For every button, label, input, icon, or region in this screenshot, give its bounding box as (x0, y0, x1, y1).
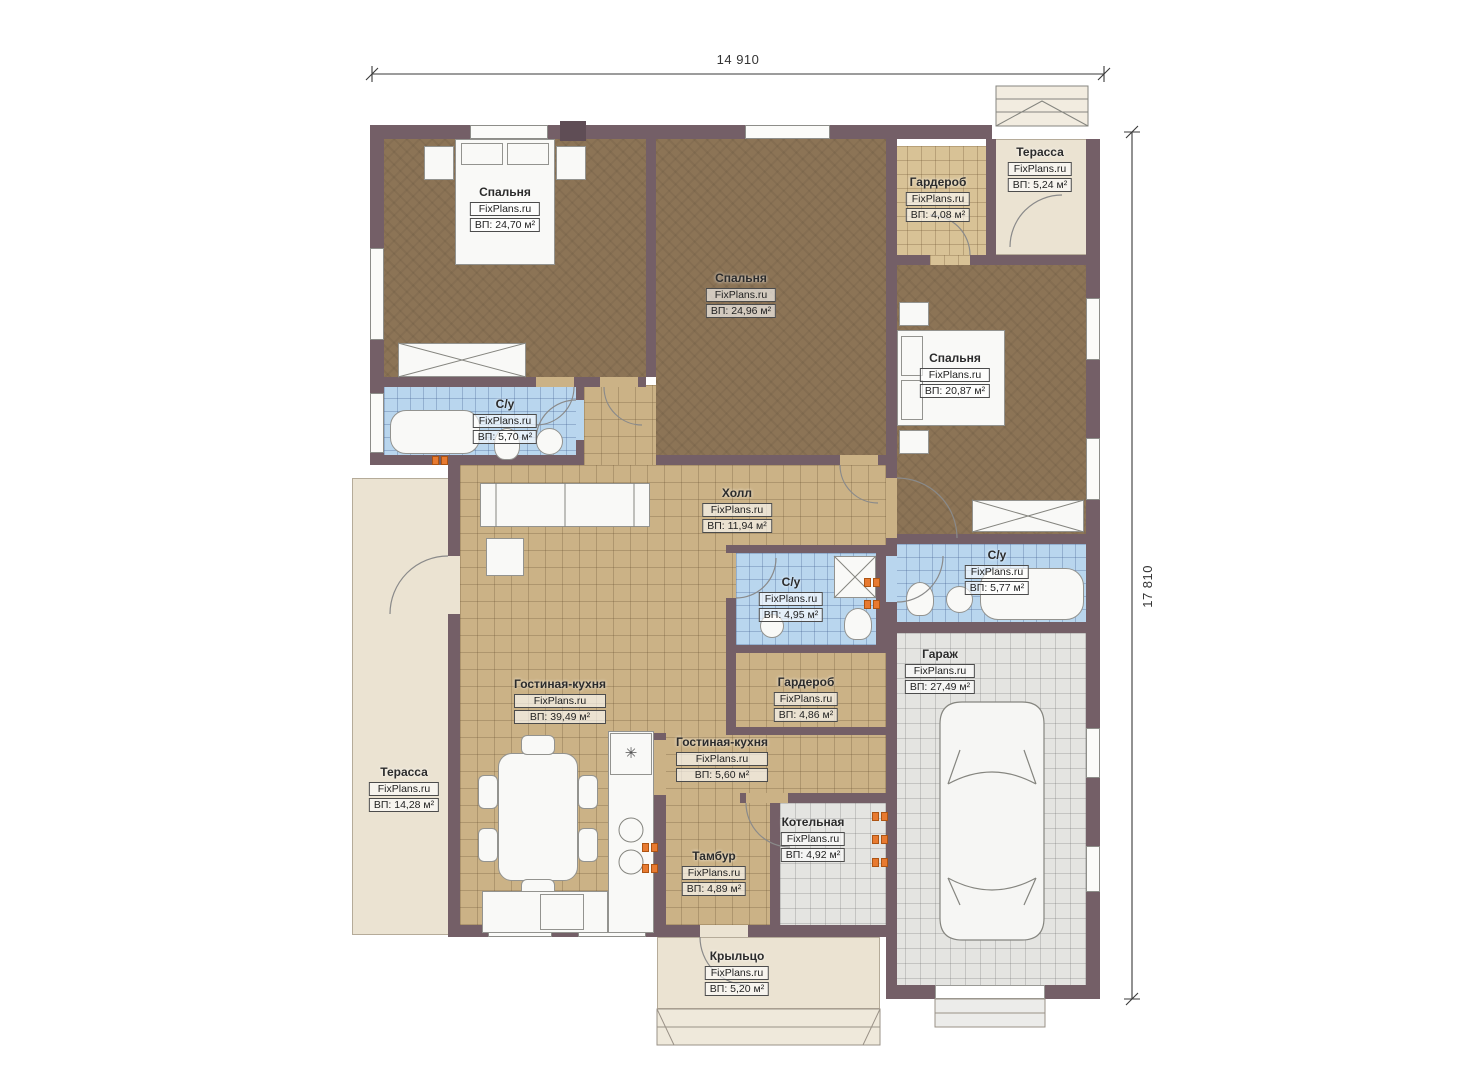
shower-icon (834, 556, 876, 598)
label-area: ВП: 24,70 м² (470, 218, 540, 232)
wall (878, 455, 886, 465)
window (745, 125, 830, 139)
label-area: ВП: 5,60 м² (676, 768, 768, 782)
label-brand: FixPlans.ru (682, 866, 746, 880)
label-brand: FixPlans.ru (470, 202, 540, 216)
label-room-name: Гардероб (774, 676, 838, 690)
sofa-icon (480, 483, 650, 527)
label-brand: FixPlans.ru (920, 368, 990, 382)
chair-icon (578, 828, 598, 862)
label-brand: FixPlans.ru (774, 692, 838, 706)
room-label-porch: Крыльцо FixPlans.ru ВП: 5,20 м² (705, 950, 769, 996)
sink-icon (536, 428, 563, 455)
wall (656, 455, 840, 465)
stairs-icon (996, 86, 1088, 126)
nightstand-icon (899, 430, 929, 454)
dining-table-icon (498, 753, 578, 881)
door-opening (930, 255, 970, 265)
door-opening (654, 740, 666, 795)
door-opening (840, 455, 878, 465)
outlet-icon (642, 843, 658, 852)
wardrobe-icon (972, 500, 1084, 532)
corridor-floor (584, 385, 656, 465)
wardrobe-icon (398, 343, 526, 377)
room-label-living-kitchen: Гостиная-кухня FixPlans.ru ВП: 39,49 м² (514, 678, 606, 724)
dimension-right-label: 17 810 (1140, 565, 1155, 608)
wall (638, 377, 646, 387)
label-room-name: Гардероб (906, 176, 970, 190)
label-brand: FixPlans.ru (759, 592, 823, 606)
wall (370, 125, 992, 139)
wall (893, 534, 1087, 544)
label-brand: FixPlans.ru (676, 752, 768, 766)
chair-icon (521, 735, 555, 755)
wall (726, 598, 736, 647)
window (370, 248, 384, 340)
bathtub-icon (390, 410, 480, 454)
door-opening (448, 556, 460, 614)
label-area: ВП: 4,95 м² (759, 608, 823, 622)
label-room-name: Гостиная-кухня (676, 736, 768, 750)
label-brand: FixPlans.ru (965, 565, 1029, 579)
window (1086, 846, 1100, 892)
label-room-name: Крыльцо (705, 950, 769, 964)
wall (726, 645, 886, 653)
door-opening (576, 400, 584, 440)
wall (370, 455, 584, 465)
room-label-terrace-left: Терасса FixPlans.ru ВП: 14,28 м² (369, 766, 439, 812)
wall (886, 985, 935, 999)
wall (876, 545, 886, 647)
wall (1045, 985, 1100, 999)
wall (886, 602, 897, 985)
window (1086, 438, 1100, 500)
label-brand: FixPlans.ru (1008, 162, 1072, 176)
chair-icon (578, 775, 598, 809)
room-label-bedroom-3: Спальня FixPlans.ru ВП: 20,87 м² (920, 352, 990, 398)
label-brand: FixPlans.ru (905, 664, 975, 678)
wall (788, 793, 886, 803)
outlet-icon (432, 456, 448, 465)
nightstand-icon (424, 146, 454, 180)
wall (886, 139, 897, 478)
toilet-icon (906, 582, 934, 616)
wall (748, 925, 886, 937)
room-label-bathroom-right: С/у FixPlans.ru ВП: 5,77 м² (965, 549, 1029, 595)
label-brand: FixPlans.ru (906, 192, 970, 206)
label-room-name: Холл (702, 487, 772, 501)
pillow-icon (461, 143, 503, 165)
label-room-name: Котельная (781, 816, 845, 830)
wall (970, 255, 1090, 265)
wall (886, 622, 1087, 633)
wall (448, 463, 460, 556)
garage-door (935, 985, 1045, 999)
label-area: ВП: 20,87 м² (920, 384, 990, 398)
room-label-bedroom-1: Спальня FixPlans.ru ВП: 24,70 м² (470, 186, 540, 232)
label-brand: FixPlans.ru (473, 414, 537, 428)
window (1086, 298, 1100, 360)
pillow-icon (507, 143, 549, 165)
label-brand: FixPlans.ru (781, 832, 845, 846)
wall (893, 255, 930, 265)
door-opening (746, 793, 788, 803)
label-area: ВП: 4,08 м² (906, 208, 970, 222)
label-area: ВП: 4,86 м² (774, 708, 838, 722)
outlet-icon (872, 835, 888, 844)
dimension-top-label: 14 910 (717, 52, 760, 67)
label-room-name: Спальня (920, 352, 990, 366)
wall (576, 387, 584, 400)
wall (986, 139, 996, 255)
label-area: ВП: 14,28 м² (369, 798, 439, 812)
wall (574, 377, 600, 387)
door-opening (600, 377, 638, 387)
wall (646, 125, 656, 377)
wall (448, 614, 460, 937)
label-room-name: Тамбур (682, 850, 746, 864)
window (470, 125, 548, 139)
label-area: ВП: 5,70 м² (473, 430, 537, 444)
outlet-icon (864, 578, 880, 587)
label-room-name: Терасса (369, 766, 439, 780)
label-area: ВП: 39,49 м² (514, 710, 606, 724)
label-brand: FixPlans.ru (514, 694, 606, 708)
door-opening (536, 377, 574, 387)
side-table-icon (486, 538, 524, 576)
door-opening (700, 925, 748, 937)
room-label-bedroom-2: Спальня FixPlans.ru ВП: 24,96 м² (706, 272, 776, 318)
label-room-name: Спальня (470, 186, 540, 200)
label-area: ВП: 5,24 м² (1008, 178, 1072, 192)
room-label-garage: Гараж FixPlans.ru ВП: 27,49 м² (905, 648, 975, 694)
room-label-wardrobe-top: Гардероб FixPlans.ru ВП: 4,08 м² (906, 176, 970, 222)
label-room-name: Гостиная-кухня (514, 678, 606, 692)
nightstand-icon (899, 302, 929, 326)
label-room-name: С/у (759, 576, 823, 590)
label-area: ВП: 27,49 м² (905, 680, 975, 694)
wall (726, 645, 736, 735)
floor-plan-canvas: ✳ (0, 0, 1474, 1080)
porch-steps-icon (657, 1009, 880, 1045)
room-label-terrace-top: Терасса FixPlans.ru ВП: 5,24 м² (1008, 146, 1072, 192)
outlet-icon (864, 600, 880, 609)
wall (384, 377, 536, 387)
wall (726, 545, 876, 553)
room-label-hall: Холл FixPlans.ru ВП: 11,94 м² (702, 487, 772, 533)
label-brand: FixPlans.ru (369, 782, 439, 796)
outlet-icon (872, 812, 888, 821)
outlet-icon (872, 858, 888, 867)
outlet-icon (642, 864, 658, 873)
wall (654, 733, 666, 740)
label-area: ВП: 4,89 м² (682, 882, 746, 896)
chimney-block (560, 121, 586, 141)
nightstand-icon (556, 146, 586, 180)
label-brand: FixPlans.ru (706, 288, 776, 302)
chair-icon (478, 775, 498, 809)
room-label-wardrobe-center: Гардероб FixPlans.ru ВП: 4,86 м² (774, 676, 838, 722)
door-opening (886, 478, 897, 538)
label-room-name: Гараж (905, 648, 975, 662)
room-label-bathroom-left: С/у FixPlans.ru ВП: 5,70 м² (473, 398, 537, 444)
room-floor-terrace-left (352, 478, 460, 935)
label-area: ВП: 24,96 м² (706, 304, 776, 318)
label-brand: FixPlans.ru (702, 503, 772, 517)
room-label-boiler: Котельная FixPlans.ru ВП: 4,92 м² (781, 816, 845, 862)
appliance-icon (540, 894, 584, 930)
label-room-name: Терасса (1008, 146, 1072, 160)
label-room-name: С/у (965, 549, 1029, 563)
label-area: ВП: 5,20 м² (705, 982, 769, 996)
toilet-icon (844, 608, 872, 640)
wall (576, 440, 584, 465)
chair-icon (478, 828, 498, 862)
label-area: ВП: 11,94 м² (702, 519, 772, 533)
room-label-vestibule: Тамбур FixPlans.ru ВП: 4,89 м² (682, 850, 746, 896)
garage-apron-icon (935, 999, 1045, 1027)
door-opening (886, 556, 897, 602)
wall (770, 803, 780, 925)
label-room-name: Спальня (706, 272, 776, 286)
window (370, 393, 384, 453)
wall (726, 727, 886, 735)
room-label-bathroom-center: С/у FixPlans.ru ВП: 4,95 м² (759, 576, 823, 622)
window (1086, 728, 1100, 778)
label-room-name: С/у (473, 398, 537, 412)
label-area: ВП: 5,77 м² (965, 581, 1029, 595)
label-brand: FixPlans.ru (705, 966, 769, 980)
wall (654, 795, 666, 925)
room-label-living-kitchen-2: Гостиная-кухня FixPlans.ru ВП: 5,60 м² (676, 736, 768, 782)
stove-icon: ✳ (610, 733, 652, 775)
label-area: ВП: 4,92 м² (781, 848, 845, 862)
